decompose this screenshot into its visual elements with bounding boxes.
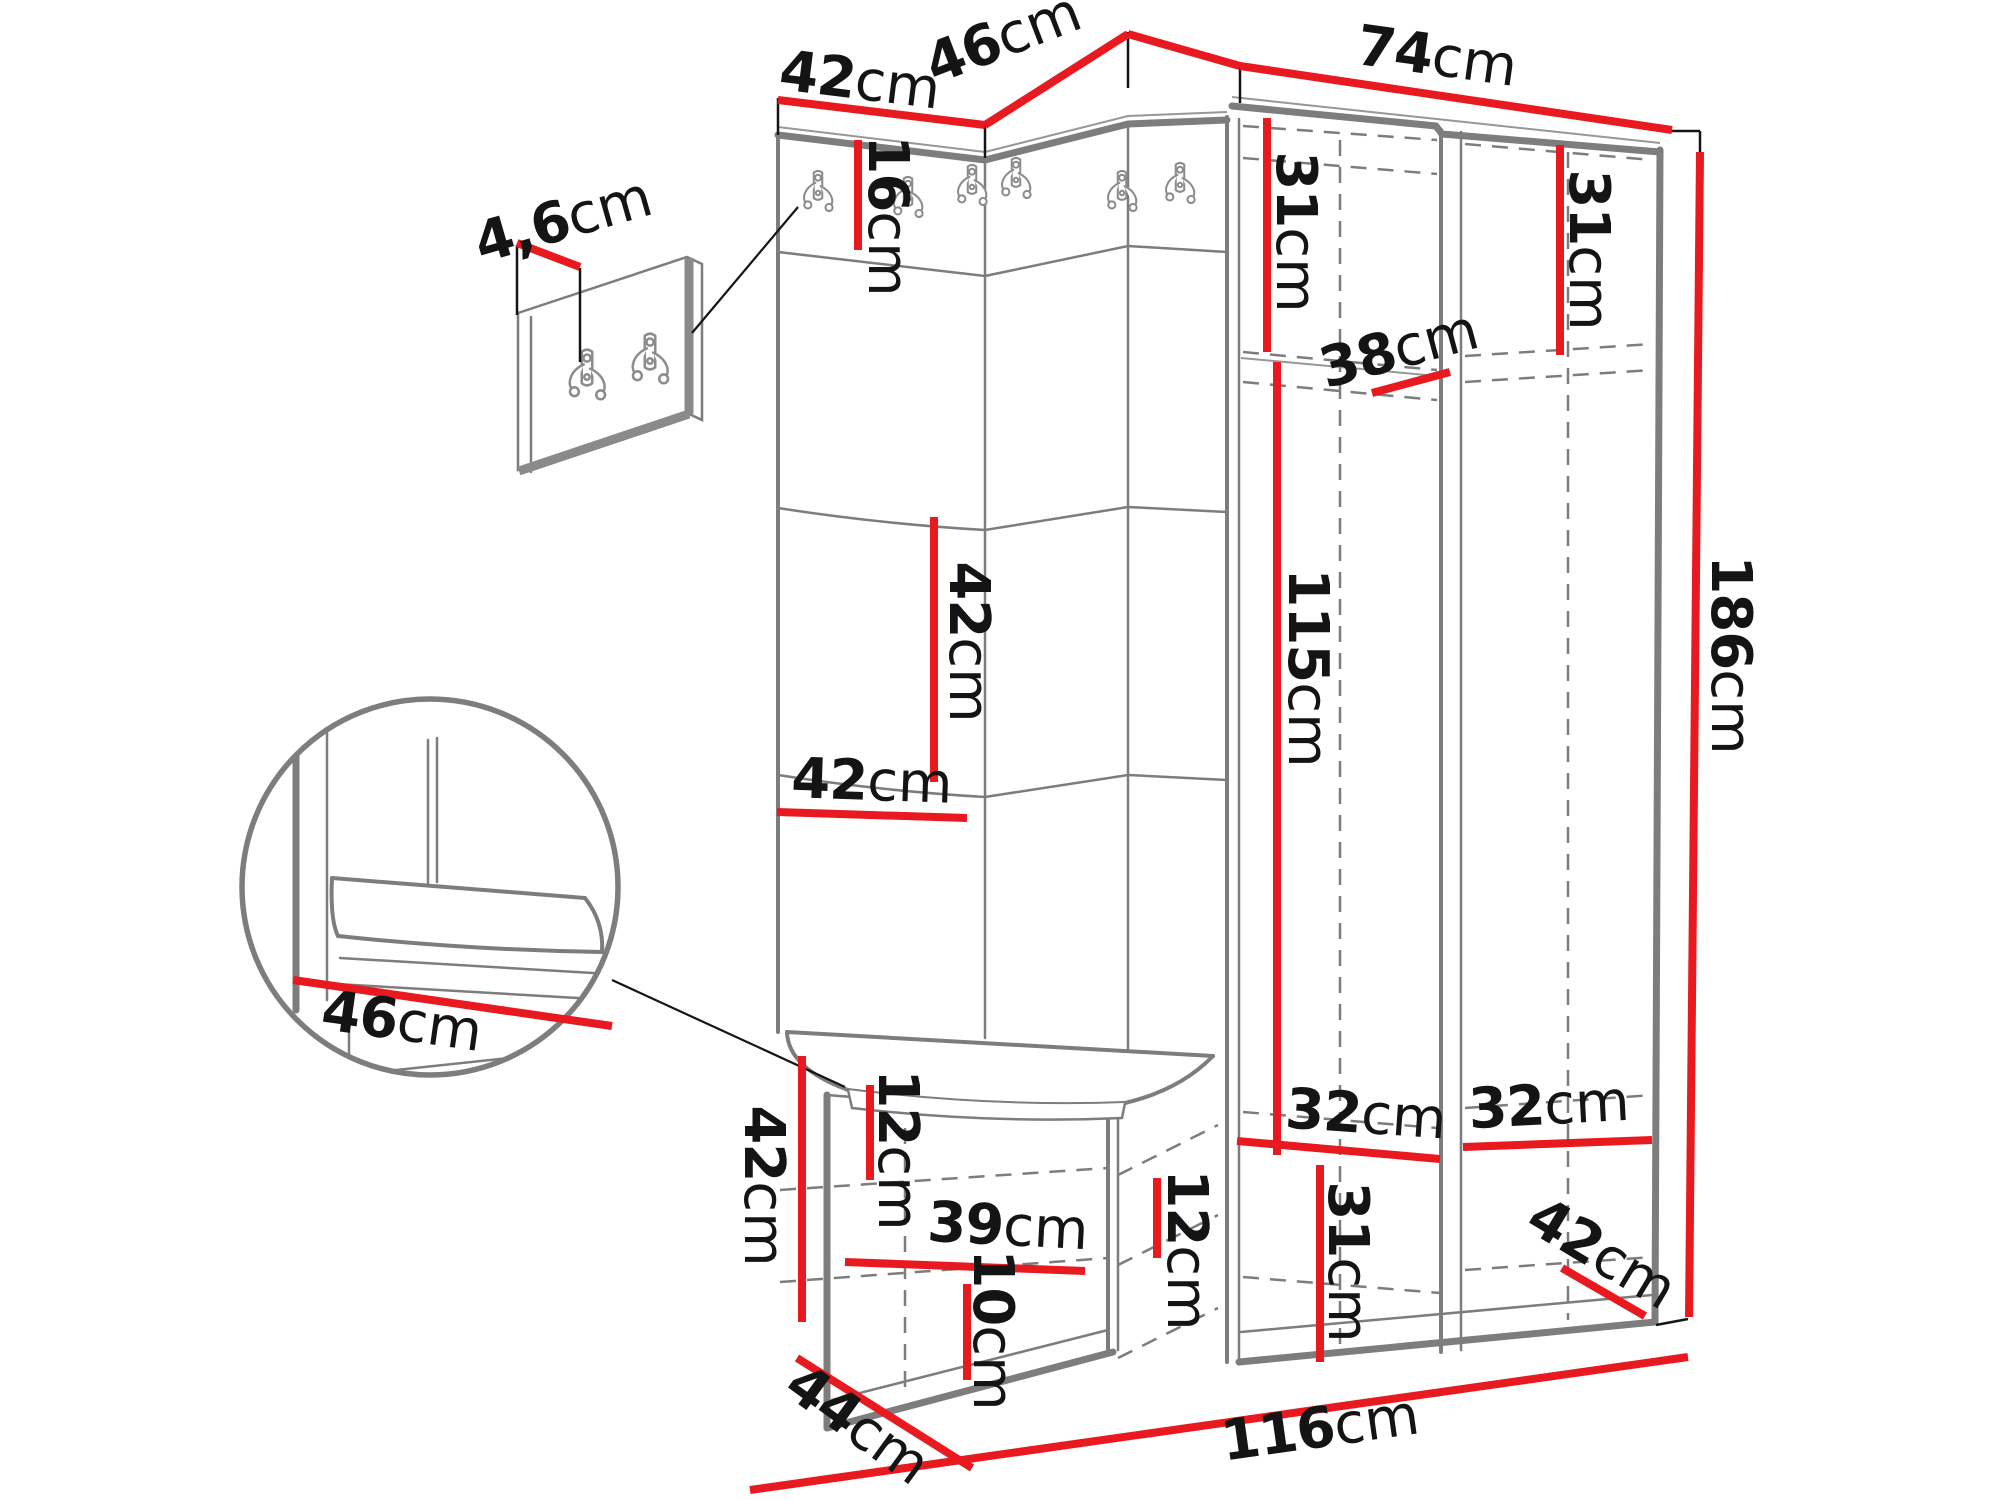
dimension-label-hanging-space-height: 115cm bbox=[1276, 568, 1341, 767]
dimension-label-bench-gap-top: 12cm bbox=[866, 1069, 931, 1230]
dimension-label-top-width-left: 42cm bbox=[776, 38, 944, 122]
dimension-label-wardrobe-bottom-height: 31cm bbox=[1316, 1181, 1381, 1342]
dimension-line-height-total bbox=[1689, 152, 1700, 1317]
dimension-line-top-depth-corner bbox=[1128, 34, 1240, 66]
dimension-label-bench-height: 42cm bbox=[732, 1105, 797, 1266]
dimension-label-panel-square-width: 42cm bbox=[790, 746, 953, 817]
dimension-label-bench-gap-middle: 12cm bbox=[1155, 1169, 1220, 1330]
dimension-label-bench-gap-bottom: 10cm bbox=[961, 1249, 1026, 1410]
dimension-label-height-total: 186cm bbox=[1699, 555, 1764, 754]
dimension-label-wardrobe-top-right-height: 31cm bbox=[1557, 169, 1622, 330]
dimension-label-total-width: 116cm bbox=[1217, 1382, 1423, 1474]
dimension-label-wardrobe-top-left-height: 31cm bbox=[1264, 151, 1329, 312]
dimension-label-top-depth-corner: 46cm bbox=[916, 0, 1090, 97]
diagram-stage: 42cm46cm74cm186cm16cm42cm42cm31cm31cm38c… bbox=[0, 0, 2000, 1500]
extension-line-height-total bbox=[1656, 1319, 1688, 1325]
dimension-label-wardrobe-bottom-right-width: 32cm bbox=[1467, 1068, 1631, 1141]
dimension-label-hook-strip-height: 16cm bbox=[856, 135, 921, 296]
dimension-label-panel-square-height: 42cm bbox=[937, 561, 1002, 722]
furniture-dimension-diagram: 42cm46cm74cm186cm16cm42cm42cm31cm31cm38c… bbox=[0, 0, 2000, 1500]
dimension-label-wardrobe-bottom-left-width: 32cm bbox=[1283, 1076, 1448, 1152]
